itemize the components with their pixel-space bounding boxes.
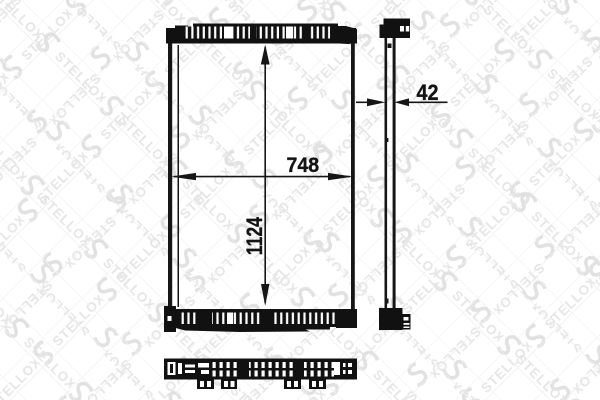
svg-text:1124: 1124 — [243, 217, 267, 255]
svg-text:748: 748 — [287, 154, 320, 177]
svg-text:42: 42 — [417, 81, 439, 105]
